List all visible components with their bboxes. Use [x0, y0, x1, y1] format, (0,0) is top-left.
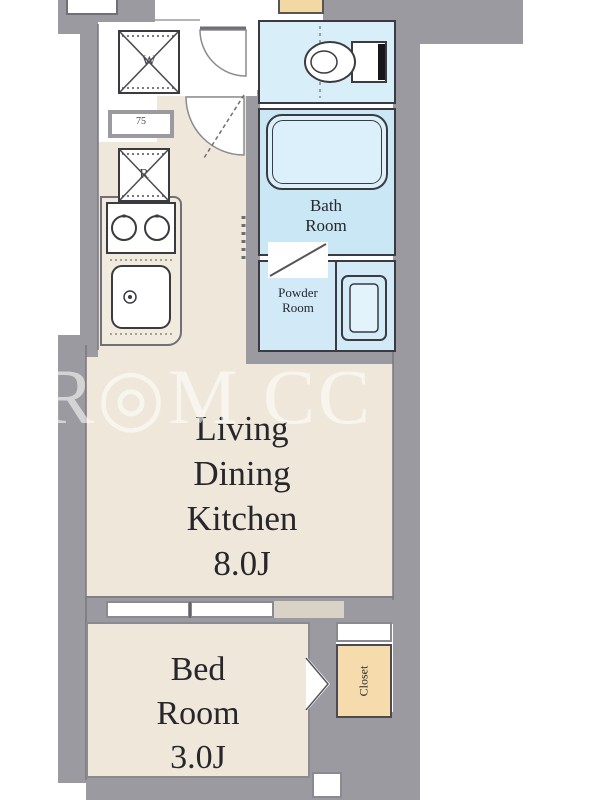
- wall: [80, 30, 98, 350]
- bedroom-label-line: Room: [88, 692, 308, 736]
- bedroom-size: 3.0J: [88, 736, 308, 780]
- closet-shelf: [336, 622, 392, 642]
- shaft-box: [66, 0, 118, 15]
- window: [312, 772, 342, 798]
- wall-opening: [274, 601, 344, 618]
- ldk-label-line: Kitchen: [96, 496, 388, 541]
- meter-box: [278, 0, 324, 14]
- stove-icon: [106, 202, 176, 254]
- bathroom-label: Bath Room: [258, 196, 394, 236]
- bathtub-inner-line: [272, 120, 382, 184]
- powder-room-label-line: Powder: [260, 285, 336, 300]
- wall-notch: [58, 783, 86, 800]
- powder-room-label: Powder Room: [260, 285, 336, 315]
- ldk-size: 8.0J: [96, 541, 388, 586]
- washer-label: W: [118, 53, 180, 70]
- sliding-door: [106, 601, 190, 618]
- sliding-door: [190, 601, 274, 618]
- fridge-label: R: [118, 167, 170, 183]
- ldk-label-line: Dining: [96, 451, 388, 496]
- bathtub-icon: [266, 114, 388, 190]
- wall: [310, 624, 336, 716]
- wall: [393, 0, 420, 800]
- bedroom-label-line: Bed: [88, 648, 308, 692]
- bedroom-label: Bed Room 3.0J: [88, 648, 308, 780]
- closet-label: Closet: [357, 666, 372, 697]
- counter-75-label: 75: [108, 116, 174, 127]
- bathroom-label-line: Room: [258, 216, 394, 236]
- floorplan: Living Dining Kitchen 8.0J Bed Room 3.0J…: [0, 0, 600, 800]
- watermark: R◎M CC: [42, 352, 373, 442]
- bathroom-label-line: Bath: [258, 196, 394, 216]
- powder-room-label-line: Room: [260, 300, 336, 315]
- toilet-room: [258, 20, 396, 104]
